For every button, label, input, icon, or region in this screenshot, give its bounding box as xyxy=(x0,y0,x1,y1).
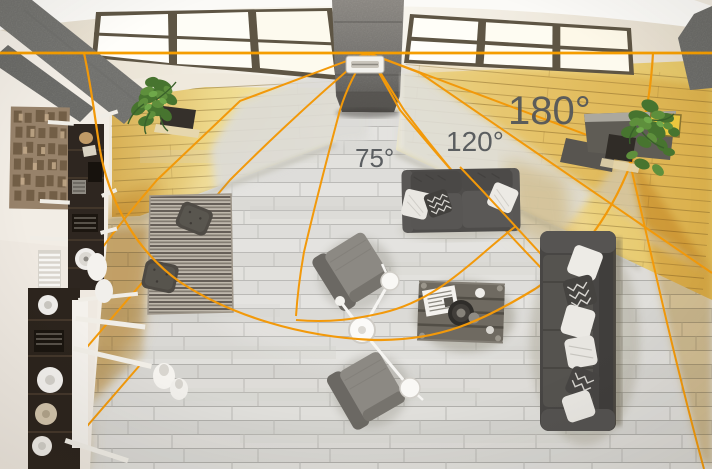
svg-text:75°: 75° xyxy=(355,143,394,173)
svg-text:120°: 120° xyxy=(446,126,504,157)
svg-text:180°: 180° xyxy=(508,89,591,133)
